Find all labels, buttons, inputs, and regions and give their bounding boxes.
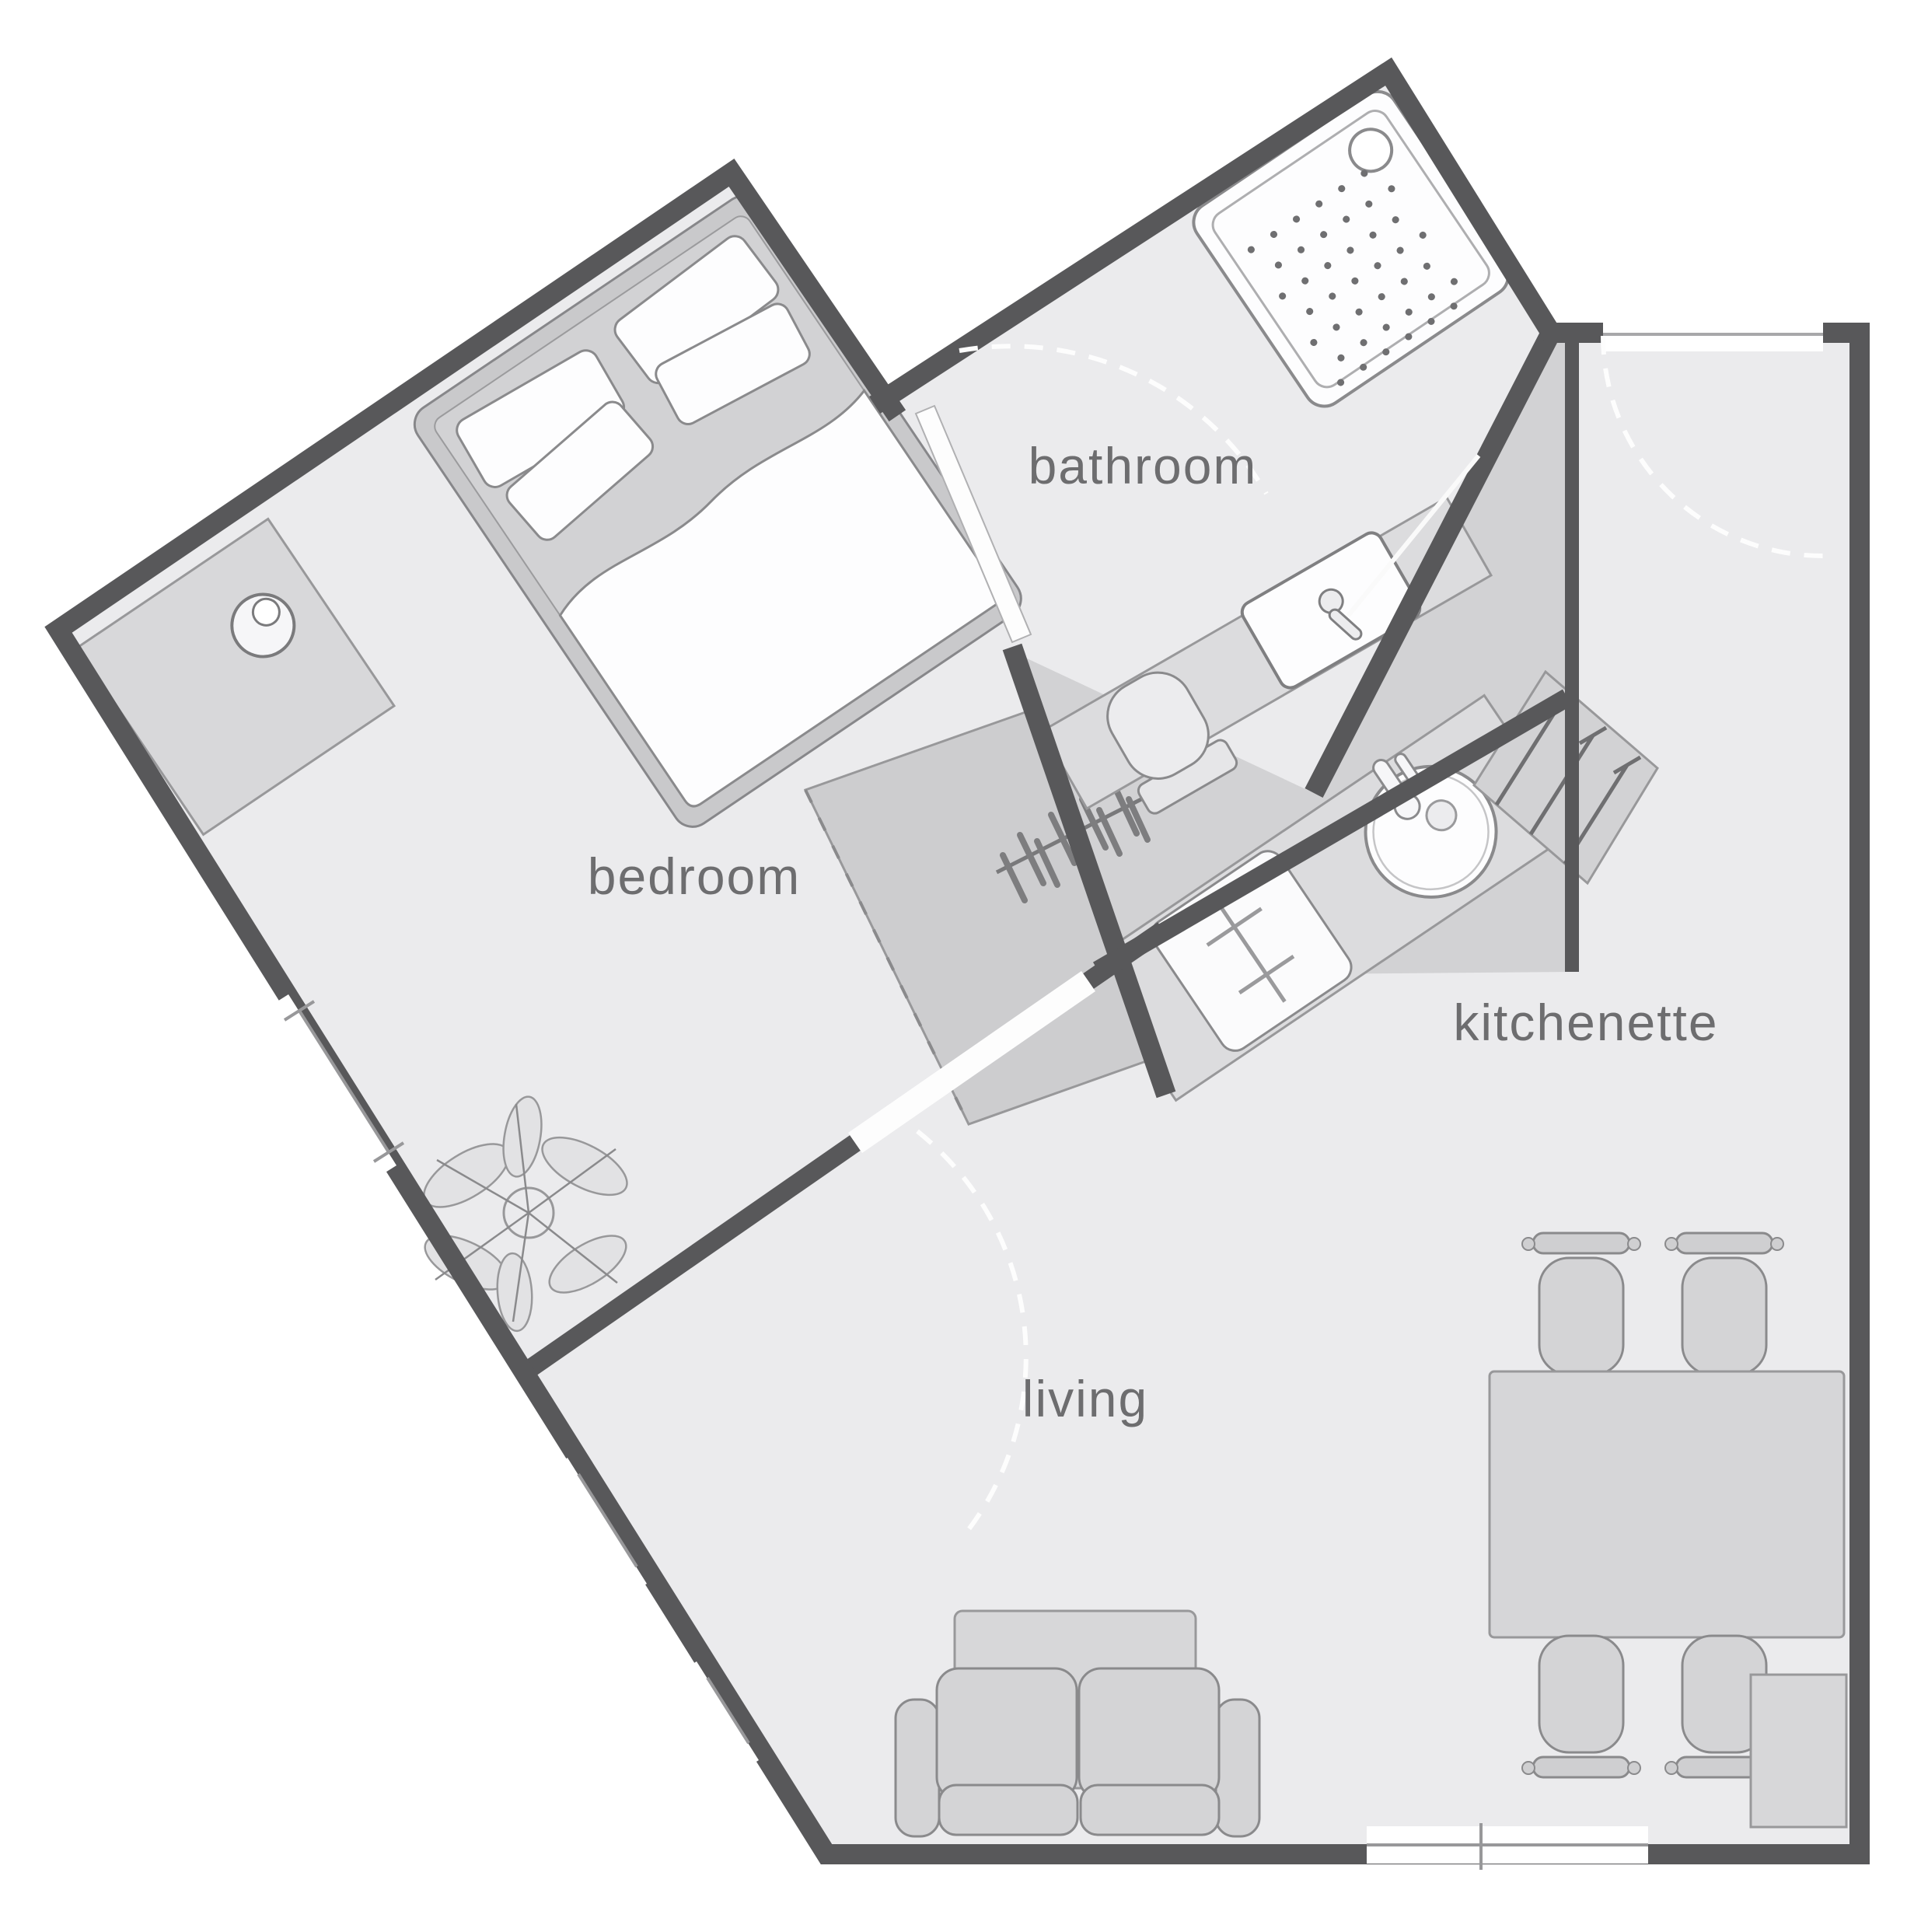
dining-table-icon (1490, 1371, 1844, 1637)
floor-plan-page: bedroom bathroom kitchenette living (0, 0, 1928, 1932)
sofa-icon (896, 1668, 1259, 1836)
room-label-bedroom: bedroom (588, 847, 802, 905)
floor-plan-canvas: bedroom bathroom kitchenette living (0, 0, 1928, 1932)
room-label-kitchenette: kitchenette (1453, 994, 1718, 1051)
tv-cabinet-icon (1751, 1675, 1846, 1827)
window-icon (1367, 1823, 1648, 1870)
room-label-bathroom: bathroom (1029, 437, 1258, 494)
room-label-living: living (1022, 1370, 1148, 1427)
